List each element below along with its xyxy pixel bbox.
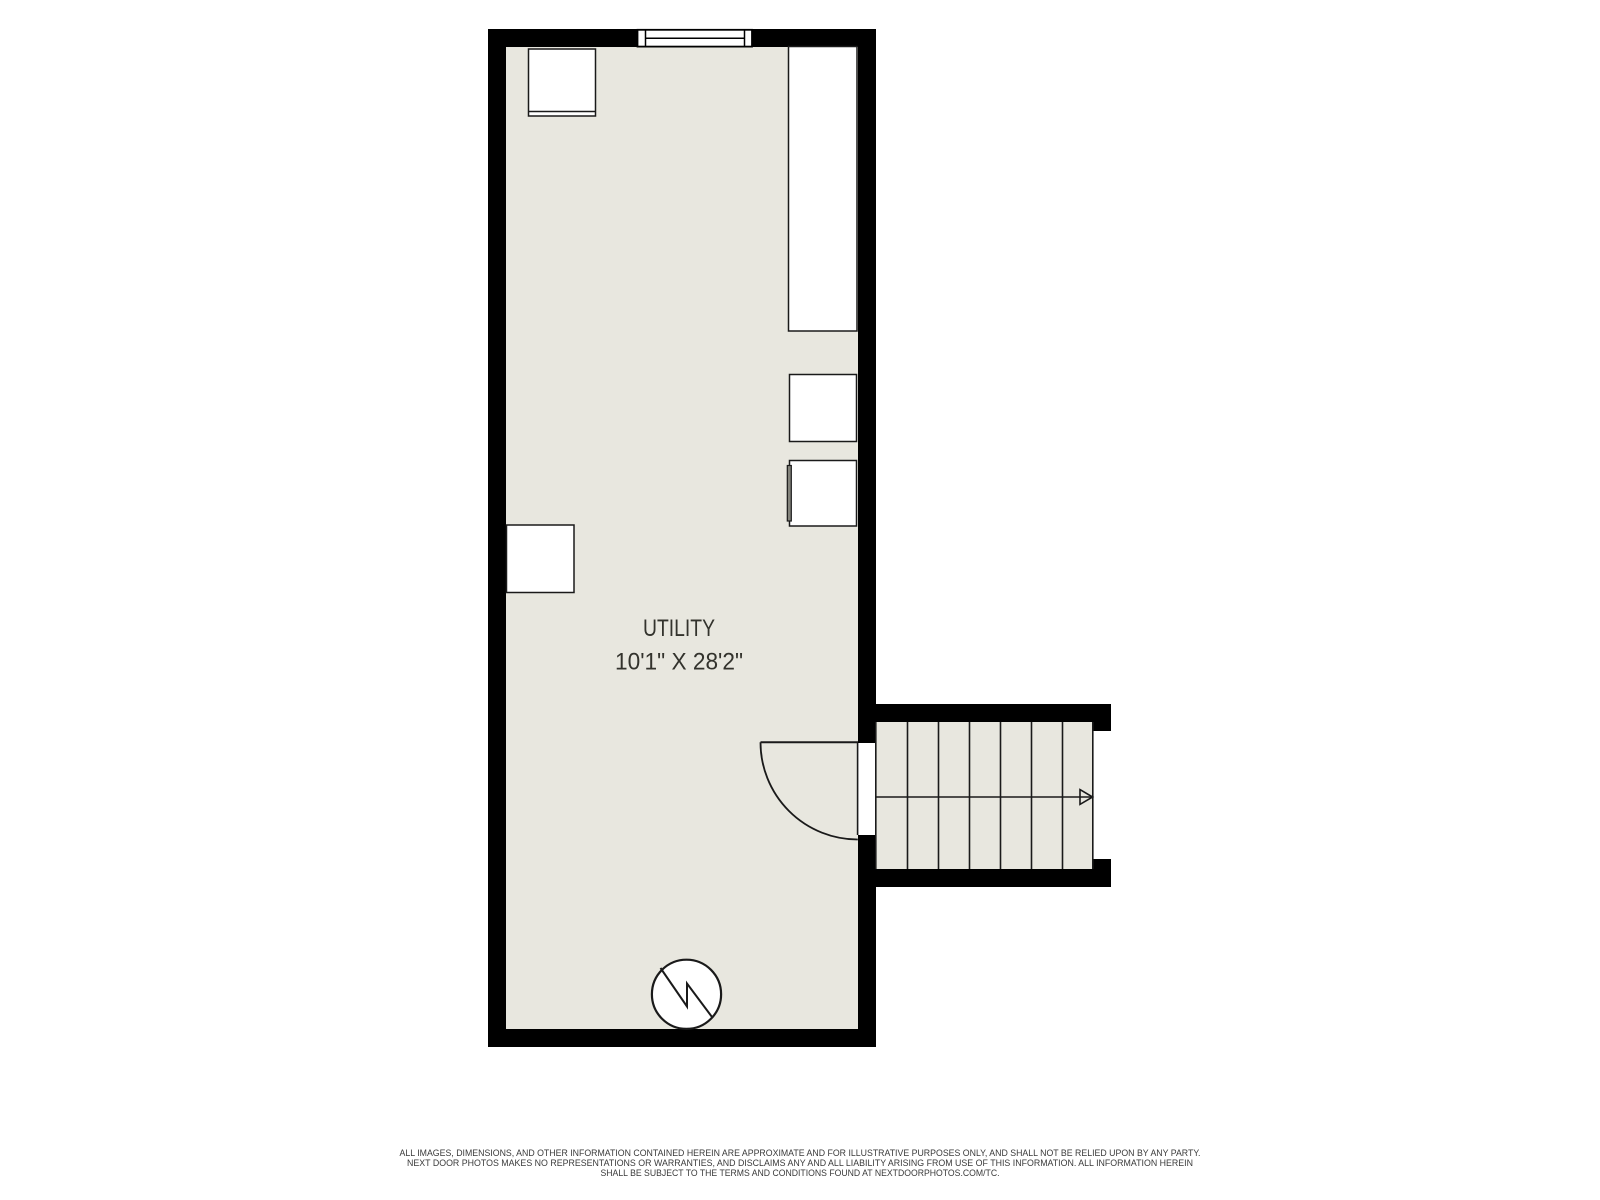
svg-text:SHALL BE SUBJECT TO THE TERMS: SHALL BE SUBJECT TO THE TERMS AND CONDIT… (601, 1168, 1000, 1179)
svg-text:10'1" X 28'2": 10'1" X 28'2" (615, 649, 743, 676)
svg-text:UTILITY: UTILITY (643, 615, 715, 642)
